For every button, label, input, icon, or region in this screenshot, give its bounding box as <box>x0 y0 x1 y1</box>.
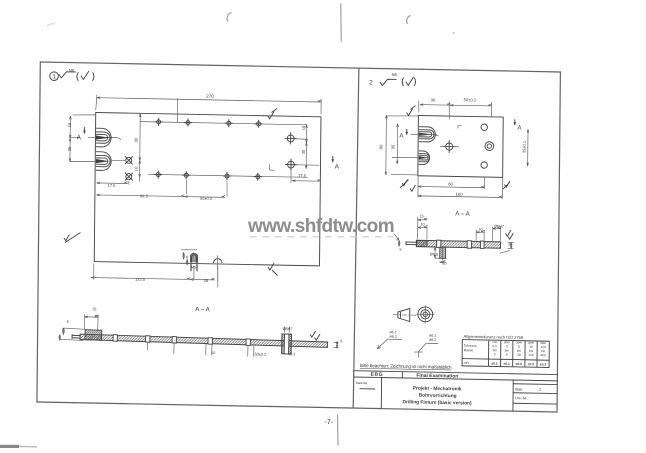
svg-text:8: 8 <box>67 320 69 324</box>
svg-text:10: 10 <box>94 314 98 318</box>
svg-text:±0.1: ±0.1 <box>503 362 510 366</box>
svg-text:10: 10 <box>134 166 139 171</box>
svg-text:35: 35 <box>301 149 306 154</box>
svg-text:2: 2 <box>539 388 541 392</box>
svg-text:A: A <box>399 133 404 140</box>
svg-text:-7-: -7- <box>325 419 334 426</box>
svg-text:10: 10 <box>420 222 424 226</box>
svg-text:Drilling Fixture (basic versio: Drilling Fixture (basic version) <box>403 399 472 406</box>
svg-text:10: 10 <box>211 351 215 355</box>
svg-text:30: 30 <box>431 97 436 102</box>
svg-text:80: 80 <box>378 144 383 149</box>
svg-text:Allgemeintoleranz nach ISO 276: Allgemeintoleranz nach ISO 2768 <box>464 334 524 340</box>
svg-text:Final Examination: Final Examination <box>416 373 458 380</box>
svg-text:A: A <box>517 124 522 131</box>
svg-text:8: 8 <box>186 255 188 259</box>
svg-text:15: 15 <box>92 307 96 311</box>
svg-text:5: 5 <box>399 248 401 252</box>
svg-text:123.5: 123.5 <box>135 277 146 282</box>
svg-text:8: 8 <box>508 243 510 247</box>
svg-text:270: 270 <box>206 94 214 99</box>
svg-text:35: 35 <box>390 144 395 149</box>
svg-text:A – A: A – A <box>455 210 470 217</box>
svg-text:Projekt - Mechatronik: Projekt - Mechatronik <box>413 386 462 393</box>
svg-text:A: A <box>77 134 82 141</box>
svg-text:±0.1: ±0.1 <box>491 362 498 366</box>
svg-text:±0.3: ±0.3 <box>528 362 535 366</box>
svg-text:8: 8 <box>340 339 342 343</box>
svg-text:100: 100 <box>456 192 464 197</box>
svg-text:120: 120 <box>528 353 534 357</box>
svg-text:60: 60 <box>448 181 453 186</box>
svg-text:A: A <box>335 163 340 170</box>
svg-text:EBG: EBG <box>371 372 383 378</box>
svg-text:17.5: 17.5 <box>108 183 117 188</box>
svg-text:Bitte beachten: Zeichnung ist: Bitte beachten: Zeichnung ist nicht maßs… <box>360 363 452 370</box>
svg-text:N8: N8 <box>392 72 398 77</box>
svg-text:mH: mH <box>464 361 470 365</box>
svg-text:5: 5 <box>182 251 184 255</box>
svg-text:35±0.1: 35±0.1 <box>521 140 526 153</box>
svg-text:50±0.2: 50±0.2 <box>464 97 477 102</box>
svg-text:1: 1 <box>52 74 56 81</box>
svg-text:N8: N8 <box>69 68 75 73</box>
svg-text:10: 10 <box>61 328 65 332</box>
svg-text:A – A: A – A <box>195 306 210 313</box>
svg-text:±0.2: ±0.2 <box>516 362 523 366</box>
svg-text:M5: M5 <box>191 265 196 269</box>
svg-text:3: 3 <box>494 352 496 356</box>
svg-text:17.5: 17.5 <box>298 173 307 178</box>
svg-text:klasse: klasse <box>464 348 474 352</box>
svg-text:Ø5.5: Ø5.5 <box>430 252 438 256</box>
svg-text:Ø8H7: Ø8H7 <box>283 327 293 331</box>
svg-text:30: 30 <box>134 137 139 142</box>
svg-text:±0.3: ±0.3 <box>540 362 547 366</box>
svg-text:15: 15 <box>301 125 306 130</box>
svg-text:6: 6 <box>506 353 508 357</box>
svg-text:92.5: 92.5 <box>140 193 149 198</box>
svg-text:Bohrvorrichtung: Bohrvorrichtung <box>419 393 457 400</box>
svg-text:±0.3: ±0.3 <box>288 352 295 356</box>
svg-text:400: 400 <box>540 353 546 357</box>
svg-text:ø6.2: ø6.2 <box>389 335 396 339</box>
svg-text:15: 15 <box>67 122 72 127</box>
svg-text:2: 2 <box>369 79 373 86</box>
svg-text:10: 10 <box>442 261 446 265</box>
svg-text:Urs.-Nr. :: Urs.-Nr. : <box>515 396 529 400</box>
svg-text:ø6.2: ø6.2 <box>429 338 436 342</box>
svg-text:15: 15 <box>419 215 423 219</box>
svg-text:Blatt: Blatt <box>515 387 522 391</box>
svg-text:28: 28 <box>204 278 209 283</box>
svg-text:50±0.2: 50±0.2 <box>200 196 213 201</box>
svg-text:50±0.2: 50±0.2 <box>254 352 266 356</box>
svg-text:30: 30 <box>517 353 521 357</box>
svg-text:35: 35 <box>67 146 72 151</box>
svg-text:Ø8H7: Ø8H7 <box>494 224 504 228</box>
svg-text:Material: Material <box>356 381 368 385</box>
